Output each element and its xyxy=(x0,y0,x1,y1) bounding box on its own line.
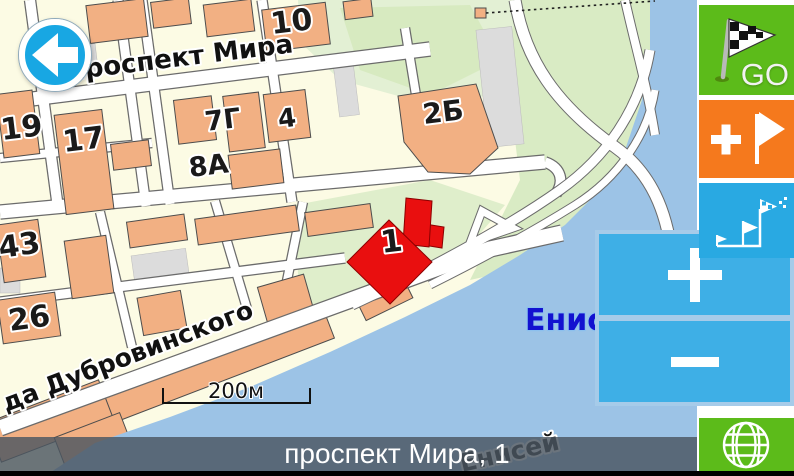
building-label-43: 43 xyxy=(0,225,42,265)
building-label-4: 4 xyxy=(276,103,298,135)
marker-number-label: 1 xyxy=(379,223,405,261)
add-waypoint-button[interactable] xyxy=(699,100,794,178)
navigation-app-screen: 1 10 19 17 7Г 4 8А 2Б 43 26 проспект Мир… xyxy=(0,0,794,476)
plus-flag-icon xyxy=(699,100,794,178)
current-address-label: проспект Мира, 1 xyxy=(284,438,509,470)
go-button-label: GO xyxy=(741,57,789,93)
building-label-2b: 2Б xyxy=(421,93,466,131)
back-button[interactable] xyxy=(17,17,93,93)
building-label-17: 17 xyxy=(61,120,107,160)
zoom-out-button[interactable] xyxy=(599,321,790,402)
scale-label: 200м xyxy=(208,379,264,403)
globe-icon xyxy=(699,418,794,472)
building-label-19: 19 xyxy=(0,108,44,148)
go-button[interactable]: GO xyxy=(699,5,794,95)
arrow-left-icon xyxy=(17,17,93,93)
status-bar[interactable]: проспект Мира, 1 xyxy=(0,437,794,471)
route-button[interactable] xyxy=(699,183,794,258)
building-label-8a: 8А xyxy=(187,148,230,184)
minus-icon xyxy=(671,356,719,368)
bottom-edge-strip xyxy=(0,471,794,476)
globe-button[interactable] xyxy=(699,418,794,472)
route-flags-icon xyxy=(699,183,794,258)
building-label-7g: 7Г xyxy=(203,103,243,138)
building-label-26: 26 xyxy=(6,298,52,338)
